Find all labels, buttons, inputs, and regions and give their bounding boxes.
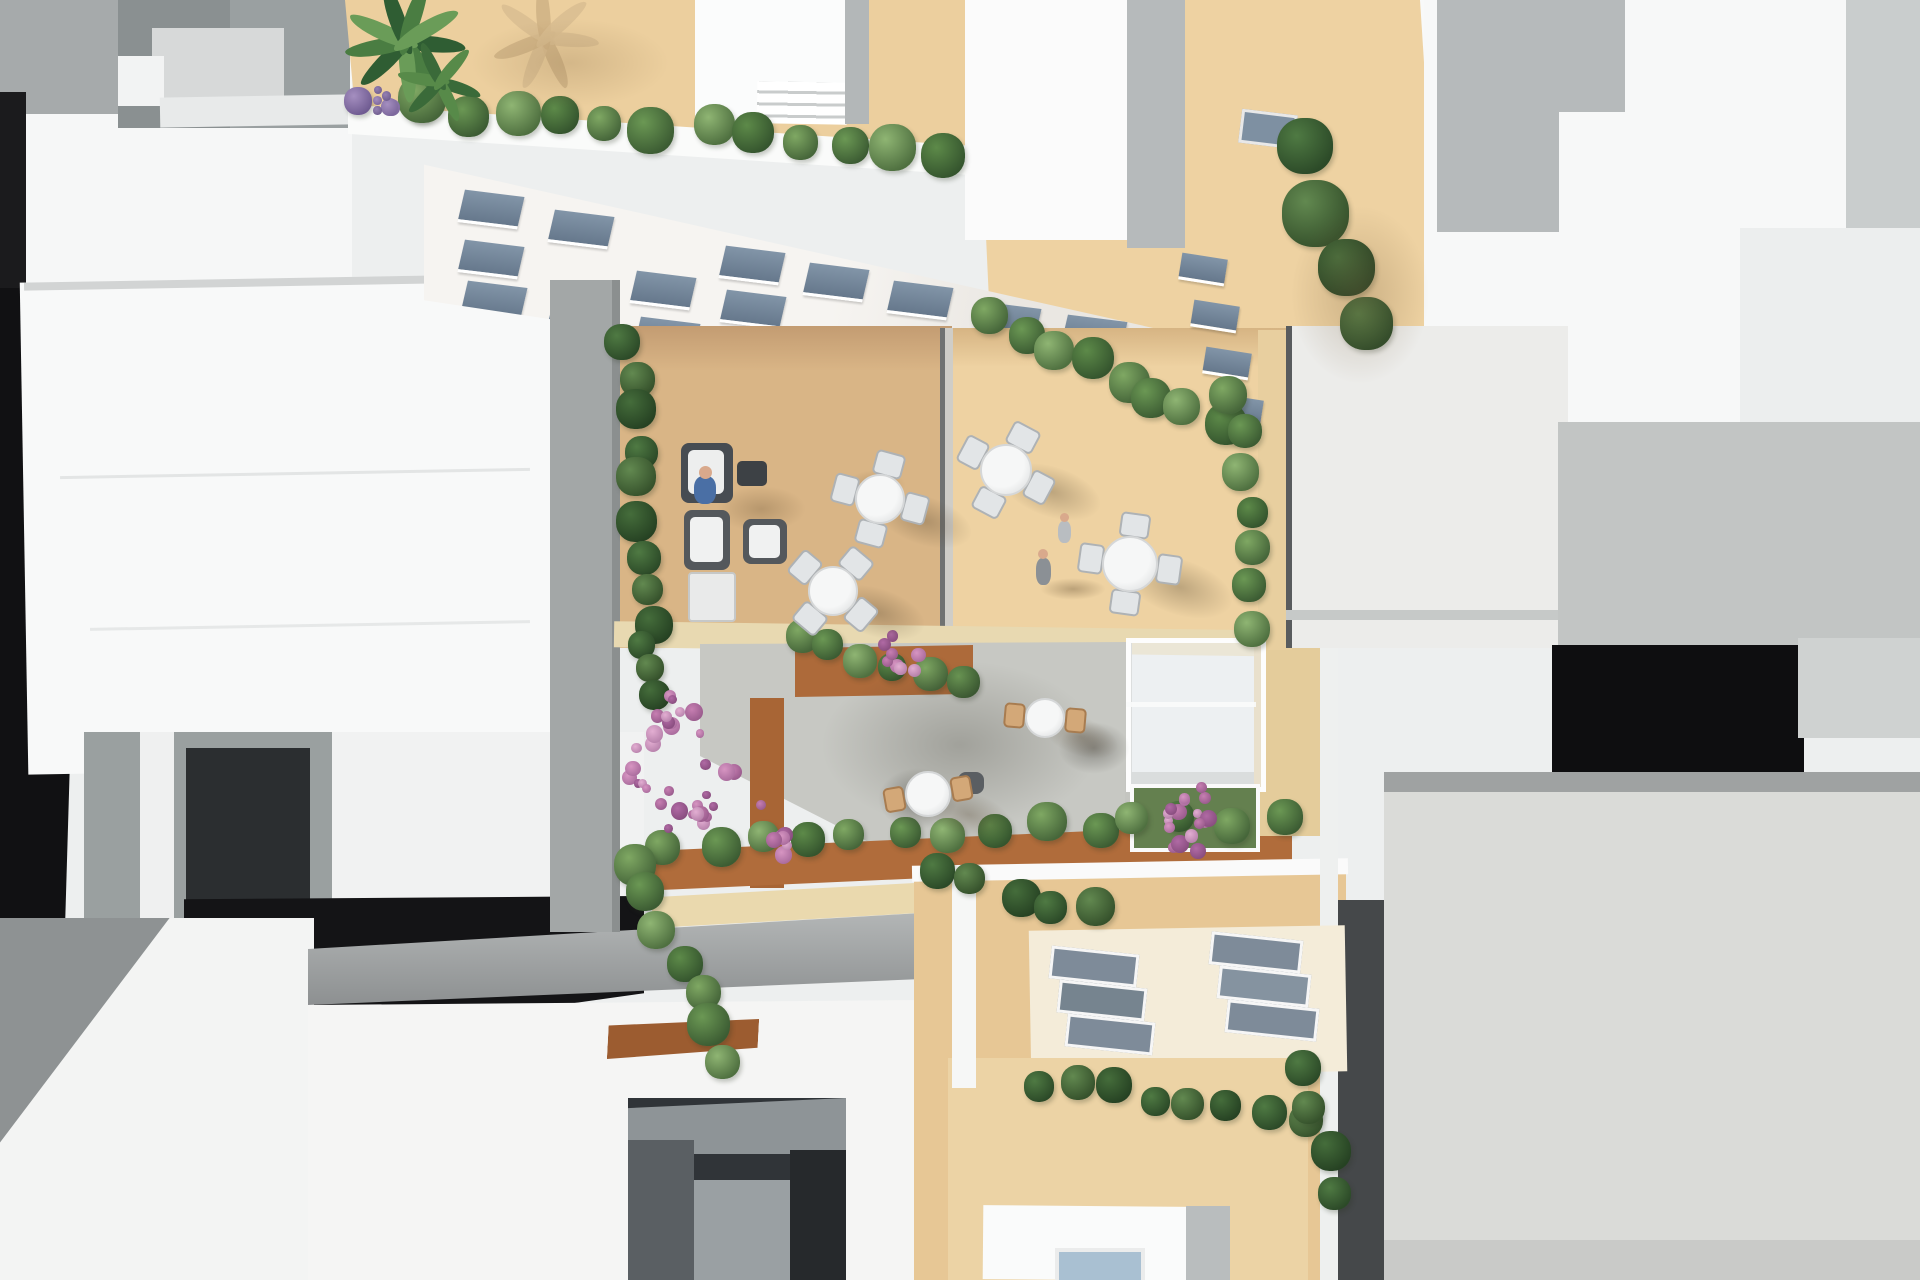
facade-window <box>887 280 954 320</box>
facade-window <box>547 209 614 249</box>
person-standing-body <box>1036 558 1051 585</box>
flowerbed-main-flower <box>702 791 710 799</box>
planter-top-flowers-flower <box>911 648 925 662</box>
terrace-left-plant-low-cluster <box>636 654 664 682</box>
shrubs-tan-right-cluster <box>1311 1131 1351 1171</box>
hedge-rightwing-cluster <box>1163 388 1200 425</box>
shrubs-tan-mid-cluster <box>1210 1090 1241 1121</box>
terrace-table-4-top <box>980 444 1032 496</box>
courtyard-bistro-1-chair <box>1064 707 1087 734</box>
flowerbed-main-flower <box>756 800 766 810</box>
flowerbed-upper-flower <box>675 707 685 717</box>
flowerbed-main-flower <box>646 725 663 742</box>
lavender-dots-flower <box>373 96 382 105</box>
shrubs-tan-mid-cluster <box>1096 1067 1132 1103</box>
flowerbed-main-flower <box>625 761 640 776</box>
aerial-architectural-render <box>0 0 1920 1280</box>
bushes-left-low-cluster <box>705 1045 739 1079</box>
white-divider-wall <box>952 876 976 1088</box>
terrace-left-plant-strip-cluster <box>604 324 640 360</box>
courtyard-bistro-2-chair <box>949 774 974 802</box>
hedge-vertical-right-cluster <box>1234 611 1270 647</box>
hedge-vertical-right-cluster <box>1228 414 1263 449</box>
lavender-dots-flower <box>373 106 381 114</box>
hedge-top-terrace-cluster <box>732 112 774 154</box>
bushes-left-low-cluster <box>637 911 675 949</box>
side-table <box>737 461 767 486</box>
rightmid-left-edge-line <box>1286 326 1292 648</box>
penthouse-gray-wall <box>1186 1206 1230 1280</box>
hedge-vertical-right-cluster <box>1237 497 1268 528</box>
hedge-rightwing-cluster <box>1034 331 1073 370</box>
bottomright-bottom-shade <box>1384 1240 1920 1280</box>
bottom-hedge-flowers-flower <box>1190 843 1205 858</box>
topleft-recess-floor <box>152 28 284 100</box>
terrace-left-plant-strip-cluster <box>616 501 657 542</box>
terrace-table-3-chair <box>1154 553 1183 586</box>
terrace-table-1-top <box>855 474 905 524</box>
bottom-hedge-cluster <box>791 822 825 856</box>
flower-cage-flowers-flower <box>1185 829 1199 843</box>
left-gray-parapet-band <box>550 280 618 932</box>
holebldg-hole-left-wall <box>628 1140 694 1280</box>
bottom-hedge-cluster <box>1267 799 1303 835</box>
shrubs-tan-mid-cluster <box>1252 1095 1287 1130</box>
rightmid-bottom-line <box>1286 610 1568 620</box>
courtyard-bistro-1-top <box>1025 698 1065 738</box>
hedge-top-terrace-cluster <box>869 124 916 171</box>
greenhouse <box>1126 638 1266 792</box>
bottom-hedge-cluster <box>1083 813 1118 848</box>
bushes-left-low-cluster <box>626 872 665 911</box>
flower-cage-flowers-flower <box>1164 822 1175 833</box>
right-black-band <box>1552 645 1804 785</box>
facade-window <box>802 263 869 303</box>
bottomright-concrete-wall <box>1384 772 1920 1280</box>
bottom-hedge-cluster <box>833 819 864 850</box>
recess2-white-column <box>140 732 174 924</box>
terrace-left-plant-strip-cluster <box>616 457 655 496</box>
topright-shadow-tall <box>1437 0 1559 232</box>
shrubs-tan-top-cluster <box>1034 891 1067 924</box>
recess2-dark-opening <box>186 748 310 920</box>
flowerbed-main-flower <box>718 763 735 780</box>
bottom-hedge-cluster <box>1214 808 1249 843</box>
hedge-top-terrace-cluster <box>921 133 966 178</box>
bottomright-wall-top-edge <box>1384 772 1920 792</box>
penthouse-window <box>1055 1248 1145 1280</box>
shrubs-tan-top-cluster <box>1076 887 1115 926</box>
flowerbed-main-flower <box>671 802 688 819</box>
hedge-vertical-right-cluster <box>1209 376 1247 414</box>
flowerbed-main-flower <box>709 802 717 810</box>
terrace-table-3-chair <box>1108 588 1141 617</box>
shrubs-tan-mid-cluster <box>1141 1087 1170 1116</box>
bushes-left-low-cluster <box>687 1003 729 1045</box>
flower-cage-flowers-flower <box>1179 793 1190 804</box>
tree-shadow-rightwing <box>1290 205 1430 385</box>
flower-cage-flowers-flower <box>1196 782 1207 793</box>
shrubs-tan-right-cluster <box>1292 1091 1325 1124</box>
facade-window <box>458 240 525 280</box>
person-standing-2-head <box>1060 513 1069 522</box>
person-standing-head <box>1038 549 1048 559</box>
rightmid-gray-slab <box>1558 422 1920 656</box>
greenhouse-mullion <box>1126 702 1256 707</box>
hedge-rightwing-cluster <box>971 297 1008 334</box>
facade-window <box>457 189 524 229</box>
shrubs-tan-top-cluster <box>954 863 985 894</box>
shrubs-tan-right-cluster <box>1318 1177 1351 1210</box>
facade-window <box>629 271 696 311</box>
flowerbed-main-flower <box>700 759 710 769</box>
hedge-top-terrace-cluster <box>783 125 818 160</box>
topright-shadow-step <box>1557 0 1625 112</box>
flowerbed-main-flower <box>631 743 642 754</box>
facade-window <box>719 290 786 330</box>
flowerbed-upper-flower <box>661 711 672 722</box>
flowerbed-main-flower <box>664 824 673 833</box>
person-sitting-body <box>694 476 716 504</box>
shrubs-tan-top-cluster <box>920 853 955 888</box>
trees-rightwing-cluster <box>1277 118 1333 174</box>
hedge-top-terrace-cluster <box>587 106 621 140</box>
roof-bulkhead-steps <box>757 81 848 125</box>
courtyard-bistro-2-top <box>905 771 951 817</box>
terrace-left-plant-strip-cluster <box>632 574 663 605</box>
shrubs-tan-mid-cluster <box>1061 1065 1095 1099</box>
terrace-left-plant-strip-cluster <box>616 389 656 429</box>
facade-window <box>718 246 785 286</box>
hedge-top-terrace-cluster <box>832 127 869 164</box>
bottom-hedge-cluster <box>1115 802 1148 835</box>
courtyard-bistro-1-chair <box>1003 702 1026 729</box>
hedge-top-terrace-cluster <box>694 104 735 145</box>
flowerbed-main-flower <box>664 786 673 795</box>
flower-cage-flowers-flower <box>1165 803 1177 815</box>
bottom-hedge-cluster <box>702 827 742 867</box>
roof-bulkhead-gray-wall <box>845 0 869 124</box>
lavender-dots-flower <box>382 91 392 101</box>
shrubs-tan-mid-cluster <box>1024 1071 1054 1101</box>
shrubs-tan-right-cluster <box>1285 1050 1321 1086</box>
terrace-left-plant-strip-cluster <box>627 541 661 575</box>
holebldg-hole-corner <box>790 1150 846 1280</box>
left-gray-parapet-line <box>612 280 620 932</box>
hedge-vertical-right-cluster <box>1222 453 1259 490</box>
standing-person-shadow <box>1040 578 1106 600</box>
bottom-hedge-flowers2-flower <box>766 832 782 848</box>
person-sitting-head <box>699 466 712 479</box>
rightwing-box-gray-wall <box>1127 0 1185 248</box>
hedge-vertical-right-cluster <box>1235 530 1270 565</box>
hedge-top-terrace-cluster <box>627 107 674 154</box>
pouf-2-top <box>749 525 780 558</box>
terrace-table-2-top <box>808 566 858 616</box>
terrace-table-3-top <box>1102 536 1158 592</box>
flowerbed-main-flower <box>696 729 704 737</box>
palm-ground-shadow <box>470 18 670 108</box>
white-cube-seat <box>688 572 736 622</box>
big-white-roof <box>20 273 561 774</box>
person-standing-2-body <box>1058 521 1071 543</box>
pouf-1-top <box>690 517 723 562</box>
rightwing-white-box <box>965 0 1127 240</box>
courtyard-bistro-2-chair <box>882 786 907 814</box>
flowerbed-upper-flower <box>685 703 703 721</box>
hedge-rightwing-cluster <box>1072 337 1114 379</box>
right-gray-strip <box>1798 638 1920 738</box>
planter-top-plants-cluster <box>843 644 877 678</box>
flowerbed-main-flower <box>691 807 705 821</box>
hedge-vertical-right-cluster <box>1232 568 1266 602</box>
flower-cage-flowers-flower <box>1194 818 1205 829</box>
shrubs-tan-mid-cluster <box>1171 1088 1203 1120</box>
hedge-lavender-left-cluster <box>344 87 372 115</box>
topleft-step <box>118 56 164 106</box>
topleft-step-edge <box>160 94 350 127</box>
